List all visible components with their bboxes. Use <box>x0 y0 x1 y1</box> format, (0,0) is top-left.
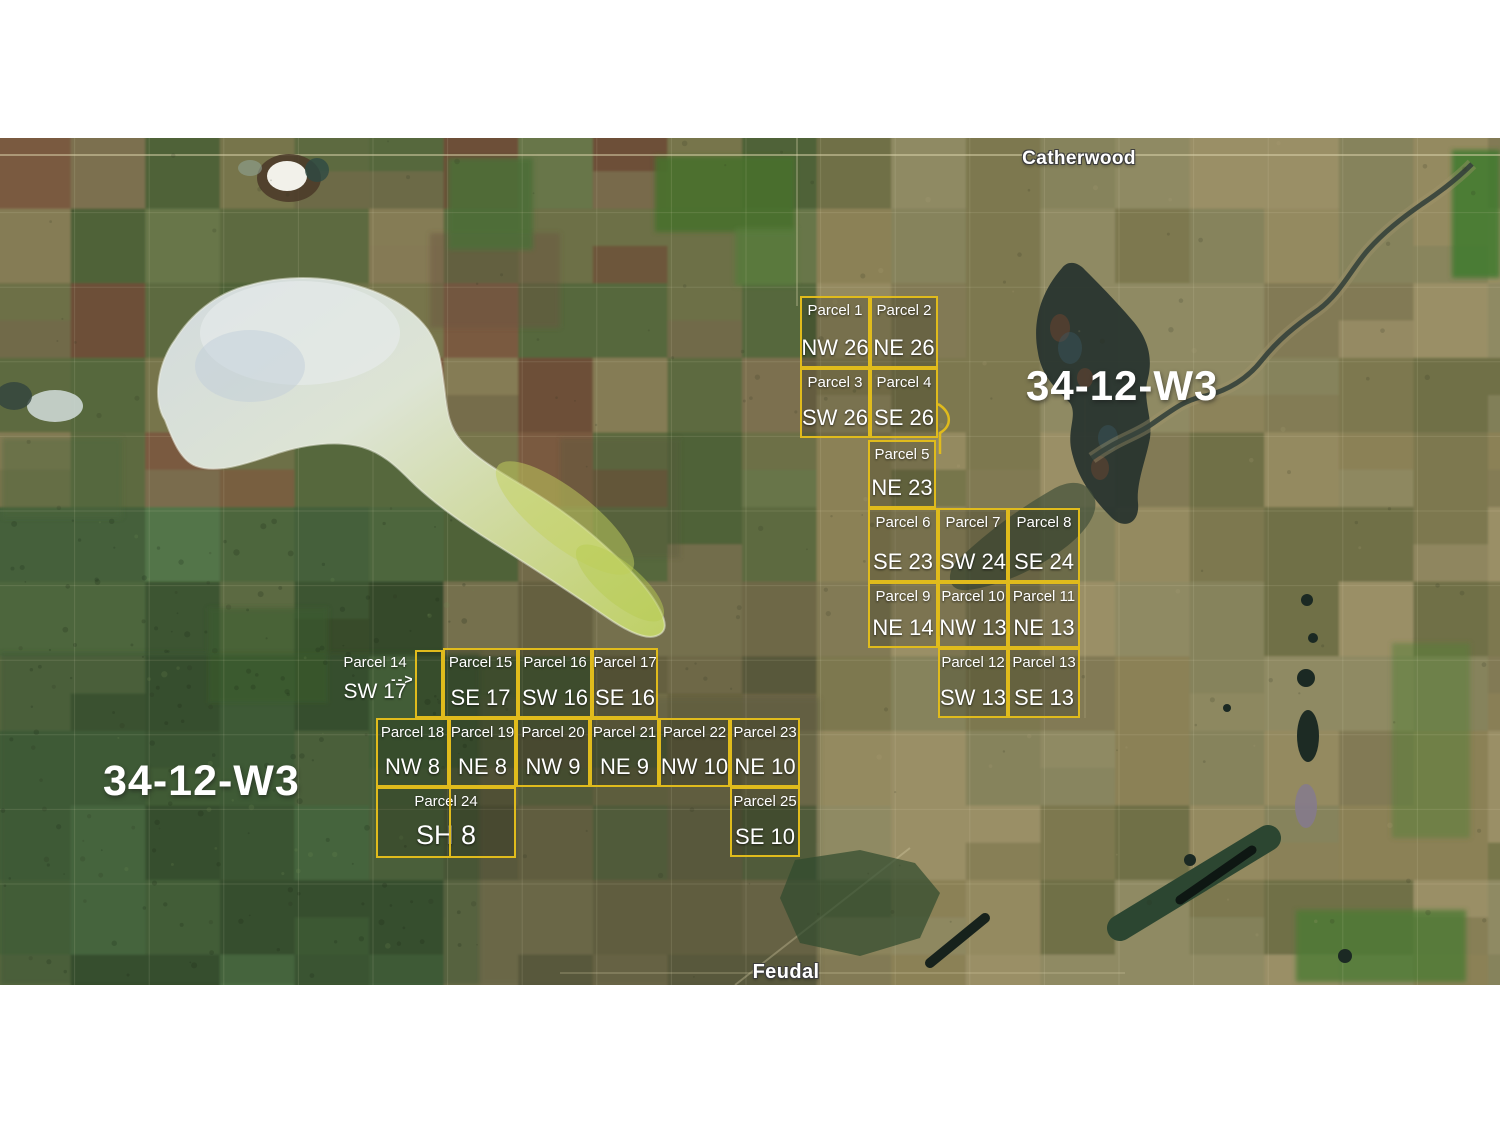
parcel-box-9[interactable]: Parcel 9NE 14 <box>868 582 938 648</box>
parcel-number-label: Parcel 8 <box>1016 514 1071 531</box>
parcel-quarter-label: SW 16 <box>522 685 588 711</box>
parcel-number-label: Parcel 5 <box>874 446 929 463</box>
screenshot-canvas: Parcel 1NW 26Parcel 2NE 26Parcel 3SW 26P… <box>0 0 1500 1125</box>
parcel-internal-divider <box>449 787 451 858</box>
parcel-number-label: Parcel 12 <box>941 654 1004 671</box>
parcel-number-label: Parcel 13 <box>1012 654 1075 671</box>
parcel-box-25[interactable]: Parcel 25SE 10 <box>730 787 800 857</box>
parcel-quarter-label: SE 10 <box>735 824 795 850</box>
parcel-quarter-label: NE 26 <box>873 335 934 361</box>
parcel-quarter-label: NE 14 <box>872 615 933 641</box>
parcel-number-label: Parcel 18 <box>381 724 444 741</box>
parcel-quarter-label: NW 9 <box>526 754 581 780</box>
parcel-quarter-label: SH 8 <box>416 820 476 851</box>
parcel-number-label: Parcel 22 <box>663 724 726 741</box>
parcel-box-20[interactable]: Parcel 20NW 9 <box>516 718 590 787</box>
parcel-number-label: Parcel 20 <box>521 724 584 741</box>
parcel-box-16[interactable]: Parcel 16SW 16 <box>518 648 592 718</box>
parcel-quarter-label: NE 23 <box>871 475 932 501</box>
parcel-box-12[interactable]: Parcel 12SW 13 <box>938 648 1008 718</box>
parcel-box-7[interactable]: Parcel 7SW 24 <box>938 508 1008 582</box>
parcel-box-21[interactable]: Parcel 21NE 9 <box>590 718 659 787</box>
parcel-box-24[interactable]: Parcel 24SH 8 <box>376 787 516 858</box>
parcel-box-23[interactable]: Parcel 23NE 10 <box>730 718 800 787</box>
parcel-quarter-label: NW 26 <box>801 335 868 361</box>
parcel-number-label: Parcel 15 <box>449 654 512 671</box>
parcel-box-2[interactable]: Parcel 2NE 26 <box>870 296 938 368</box>
parcel-number-label: Parcel 25 <box>733 793 796 810</box>
parcel-box-6[interactable]: Parcel 6SE 23 <box>868 508 938 582</box>
parcel-box-17[interactable]: Parcel 17SE 16 <box>592 648 658 718</box>
parcel-number-label: Parcel 11 <box>1013 588 1075 605</box>
town-label-feudal: Feudal <box>753 961 820 984</box>
parcel-box-4[interactable]: Parcel 4SE 26 <box>870 368 938 438</box>
parcel-number-label: Parcel 2 <box>876 302 931 319</box>
town-label-catherwood: Catherwood <box>1022 148 1136 170</box>
parcel-quarter-label: NW 10 <box>661 754 728 780</box>
parcel-number-label: Parcel 14 <box>336 654 414 671</box>
parcel-box-8[interactable]: Parcel 8SE 24 <box>1008 508 1080 582</box>
parcel-quarter-label: NE 10 <box>734 754 795 780</box>
parcel-number-label: Parcel 10 <box>941 588 1004 605</box>
parcel-box-3[interactable]: Parcel 3SW 26 <box>800 368 870 438</box>
parcel-number-label: Parcel 9 <box>875 588 930 605</box>
parcel-quarter-label: NE 8 <box>458 754 507 780</box>
arrow-icon: --> <box>391 671 415 687</box>
parcel-quarter-label: SW 13 <box>940 685 1006 711</box>
parcel-quarter-label: NE 9 <box>600 754 649 780</box>
parcel-overlay-layer: Parcel 1NW 26Parcel 2NE 26Parcel 3SW 26P… <box>0 138 1500 985</box>
parcel-box-19[interactable]: Parcel 19NE 8 <box>449 718 516 787</box>
parcel-box-1[interactable]: Parcel 1NW 26 <box>800 296 870 368</box>
parcel-quarter-label: SE 13 <box>1014 685 1074 711</box>
parcel-box-11[interactable]: Parcel 11NE 13 <box>1008 582 1080 648</box>
parcel-number-label: Parcel 7 <box>945 514 1000 531</box>
parcel-number-label: Parcel 19 <box>451 724 514 741</box>
parcel-number-label: Parcel 6 <box>875 514 930 531</box>
parcel-number-label: Parcel 4 <box>876 374 931 391</box>
satellite-map[interactable]: Parcel 1NW 26Parcel 2NE 26Parcel 3SW 26P… <box>0 138 1500 985</box>
parcel-number-label: Parcel 17 <box>593 654 656 671</box>
parcel-quarter-label: SW 24 <box>940 549 1006 575</box>
parcel-number-label: Parcel 1 <box>807 302 862 319</box>
parcel-box-13[interactable]: Parcel 13SE 13 <box>1008 648 1080 718</box>
parcel-quarter-label: NW 8 <box>385 754 440 780</box>
parcel-box-15[interactable]: Parcel 15SE 17 <box>443 648 518 718</box>
parcel-number-label: Parcel 21 <box>593 724 656 741</box>
parcel-number-label: Parcel 23 <box>733 724 796 741</box>
parcel-number-label: Parcel 24 <box>414 793 477 810</box>
parcel-quarter-label: NE 13 <box>1013 615 1074 641</box>
township-label-northeast: 34-12-W3 <box>1026 362 1218 410</box>
parcel-quarter-label: SE 17 <box>451 685 511 711</box>
parcel-quarter-label: SE 26 <box>874 405 934 431</box>
parcel-quarter-label: SE 24 <box>1014 549 1074 575</box>
parcel-quarter-label: SE 16 <box>595 685 655 711</box>
parcel-quarter-label: SE 23 <box>873 549 933 575</box>
parcel-box-10[interactable]: Parcel 10NW 13 <box>938 582 1008 648</box>
township-label-southwest: 34-12-W3 <box>103 757 300 806</box>
parcel-number-label: Parcel 3 <box>807 374 862 391</box>
parcel-number-label: Parcel 16 <box>523 654 586 671</box>
parcel-box-22[interactable]: Parcel 22NW 10 <box>659 718 730 787</box>
parcel-quarter-label: SW 26 <box>802 405 868 431</box>
parcel-box-5[interactable]: Parcel 5NE 23 <box>868 440 936 508</box>
parcel-quarter-label: NW 13 <box>939 615 1006 641</box>
parcel-box-18[interactable]: Parcel 18NW 8 <box>376 718 449 787</box>
parcel-box-14[interactable] <box>415 650 443 718</box>
